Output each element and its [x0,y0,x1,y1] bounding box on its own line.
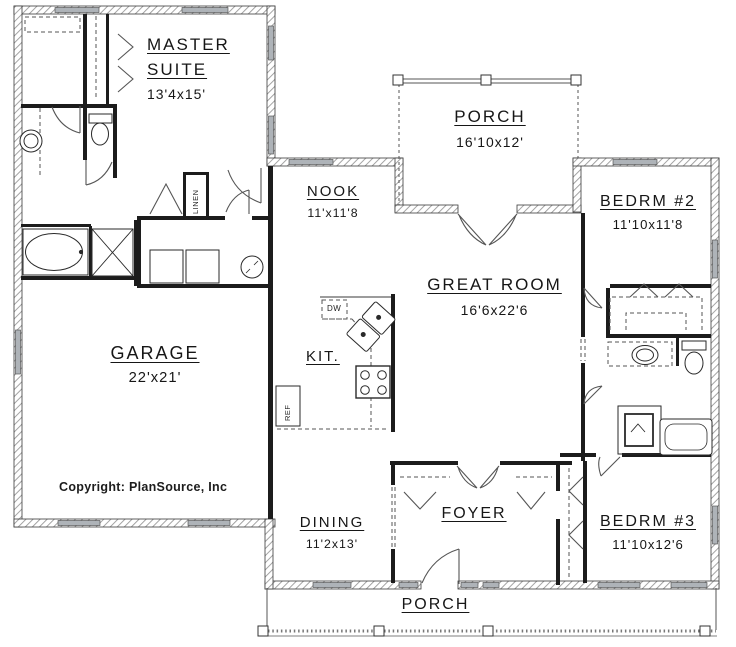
toilet-tank [89,114,112,123]
room-name: KIT. [306,348,340,365]
room-name: NOOK [307,183,359,200]
room-dims: 16'10x12' [415,132,565,152]
room-dims: 11'10x12'6 [590,535,706,554]
room-label-master-suite: MASTER SUITE 13'4x15' [147,33,251,104]
room-dims: 11'10x11'8 [590,215,706,234]
room-dims: 11'x11'8 [295,205,371,223]
washer [150,250,183,283]
room-label-bedrm-3: BEDRM #3 11'10x12'6 [590,510,706,554]
room-name: BEDRM #3 [600,513,696,530]
room-label-nook: NOOK 11'x11'8 [295,181,371,223]
room-label-kitchen: KIT. [306,346,356,368]
room-dims: 22'x21' [95,368,215,389]
tub-faucet [79,250,82,253]
room-name: GREAT ROOM [427,275,562,294]
water-heater-2 [625,414,653,446]
toilet-2-tank [682,341,706,350]
room-name: BEDRM #2 [600,193,696,210]
water-heater [241,256,263,278]
floor-plan: MASTER SUITE 13'4x15' PORCH 16'10x12' NO… [0,0,736,647]
room-label-porch-bottom: PORCH [393,593,478,616]
room-label-bedrm-2: BEDRM #2 11'10x11'8 [590,190,706,234]
copyright-text: Copyright: PlanSource, Inc [59,480,227,494]
room-label-foyer: FOYER [434,502,514,525]
bathtub [26,234,83,271]
kitchen-corner-sink [346,301,396,352]
room-dims: 16'6x22'6 [407,300,582,320]
dryer [186,250,219,283]
dishwasher-label: DW [327,304,341,313]
room-label-dining: DINING 11'2x13' [292,512,372,554]
linen-closet-label: LINEN [191,189,200,214]
room-name: FOYER [441,505,506,522]
room-name: MASTER SUITE [147,35,230,79]
interior-walls [21,14,711,585]
toilet-2 [685,352,703,374]
room-name: PORCH [454,107,525,126]
refrigerator-label: REF [283,405,292,422]
room-name: PORCH [402,596,470,613]
room-label-porch-top: PORCH 16'10x12' [415,105,565,152]
room-label-great-room: GREAT ROOM 16'6x22'6 [407,273,582,320]
room-label-garage: GARAGE 22'x21' [95,340,215,390]
room-dims: 13'4x15' [147,84,251,104]
room-name: DINING [300,514,365,531]
room-dims: 11'2x13' [292,536,372,554]
room-name: GARAGE [110,343,199,363]
toilet [92,123,109,145]
